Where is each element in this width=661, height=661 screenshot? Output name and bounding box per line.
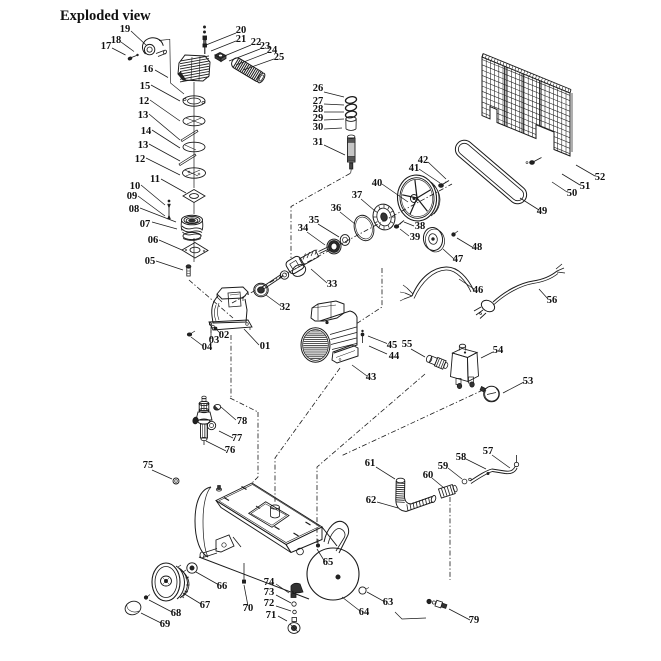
svg-text:76: 76 — [225, 445, 236, 456]
svg-text:38: 38 — [415, 221, 426, 232]
svg-text:79: 79 — [469, 615, 480, 626]
svg-text:45: 45 — [387, 340, 398, 351]
svg-text:63: 63 — [383, 597, 394, 608]
svg-text:17: 17 — [101, 41, 112, 52]
svg-text:60: 60 — [423, 470, 434, 481]
svg-text:40: 40 — [372, 178, 383, 189]
svg-text:32: 32 — [280, 302, 291, 313]
svg-text:47: 47 — [453, 254, 464, 265]
svg-text:13: 13 — [138, 110, 149, 121]
svg-text:69: 69 — [160, 619, 171, 630]
svg-text:21: 21 — [236, 34, 247, 45]
svg-text:33: 33 — [327, 279, 338, 290]
svg-text:19: 19 — [120, 24, 131, 35]
svg-text:12: 12 — [139, 96, 150, 107]
svg-text:Exploded view: Exploded view — [60, 8, 151, 24]
svg-text:56: 56 — [547, 295, 558, 306]
svg-text:01: 01 — [260, 341, 271, 352]
svg-text:66: 66 — [217, 581, 228, 592]
svg-text:58: 58 — [456, 452, 467, 463]
svg-text:67: 67 — [200, 600, 211, 611]
svg-text:55: 55 — [402, 339, 413, 350]
svg-text:71: 71 — [266, 610, 277, 621]
svg-text:78: 78 — [237, 416, 248, 427]
svg-text:68: 68 — [171, 608, 182, 619]
svg-text:77: 77 — [232, 433, 243, 444]
svg-text:07: 07 — [140, 219, 151, 230]
svg-text:59: 59 — [438, 461, 449, 472]
svg-text:57: 57 — [483, 446, 494, 457]
svg-text:53: 53 — [523, 376, 534, 387]
svg-text:06: 06 — [148, 235, 159, 246]
svg-text:14: 14 — [141, 126, 152, 137]
svg-text:16: 16 — [143, 64, 154, 75]
svg-text:46: 46 — [473, 285, 484, 296]
svg-text:54: 54 — [493, 345, 504, 356]
svg-text:25: 25 — [274, 52, 285, 63]
svg-text:44: 44 — [389, 351, 400, 362]
svg-text:61: 61 — [365, 458, 376, 469]
svg-text:72: 72 — [264, 598, 275, 609]
svg-text:49: 49 — [537, 206, 548, 217]
svg-text:64: 64 — [359, 607, 370, 618]
svg-text:65: 65 — [323, 557, 334, 568]
svg-text:13: 13 — [138, 140, 149, 151]
svg-text:50: 50 — [567, 188, 578, 199]
svg-text:10: 10 — [130, 181, 141, 192]
svg-text:26: 26 — [313, 83, 324, 94]
svg-text:15: 15 — [140, 81, 151, 92]
svg-text:62: 62 — [366, 495, 377, 506]
svg-text:35: 35 — [309, 215, 320, 226]
svg-text:31: 31 — [313, 137, 324, 148]
svg-text:05: 05 — [145, 256, 156, 267]
svg-text:36: 36 — [331, 203, 342, 214]
svg-text:11: 11 — [150, 174, 160, 185]
svg-text:18: 18 — [111, 35, 122, 46]
svg-text:30: 30 — [313, 122, 324, 133]
svg-text:75: 75 — [143, 460, 154, 471]
svg-text:08: 08 — [129, 204, 140, 215]
svg-text:73: 73 — [264, 587, 275, 598]
svg-text:12: 12 — [135, 154, 146, 165]
svg-text:42: 42 — [418, 155, 429, 166]
svg-text:09: 09 — [127, 191, 138, 202]
svg-text:43: 43 — [366, 372, 377, 383]
svg-text:02: 02 — [219, 330, 230, 341]
svg-text:37: 37 — [352, 190, 363, 201]
svg-text:52: 52 — [595, 172, 606, 183]
svg-text:39: 39 — [410, 232, 421, 243]
svg-text:51: 51 — [580, 181, 591, 192]
svg-text:04: 04 — [202, 342, 213, 353]
svg-text:48: 48 — [472, 242, 483, 253]
